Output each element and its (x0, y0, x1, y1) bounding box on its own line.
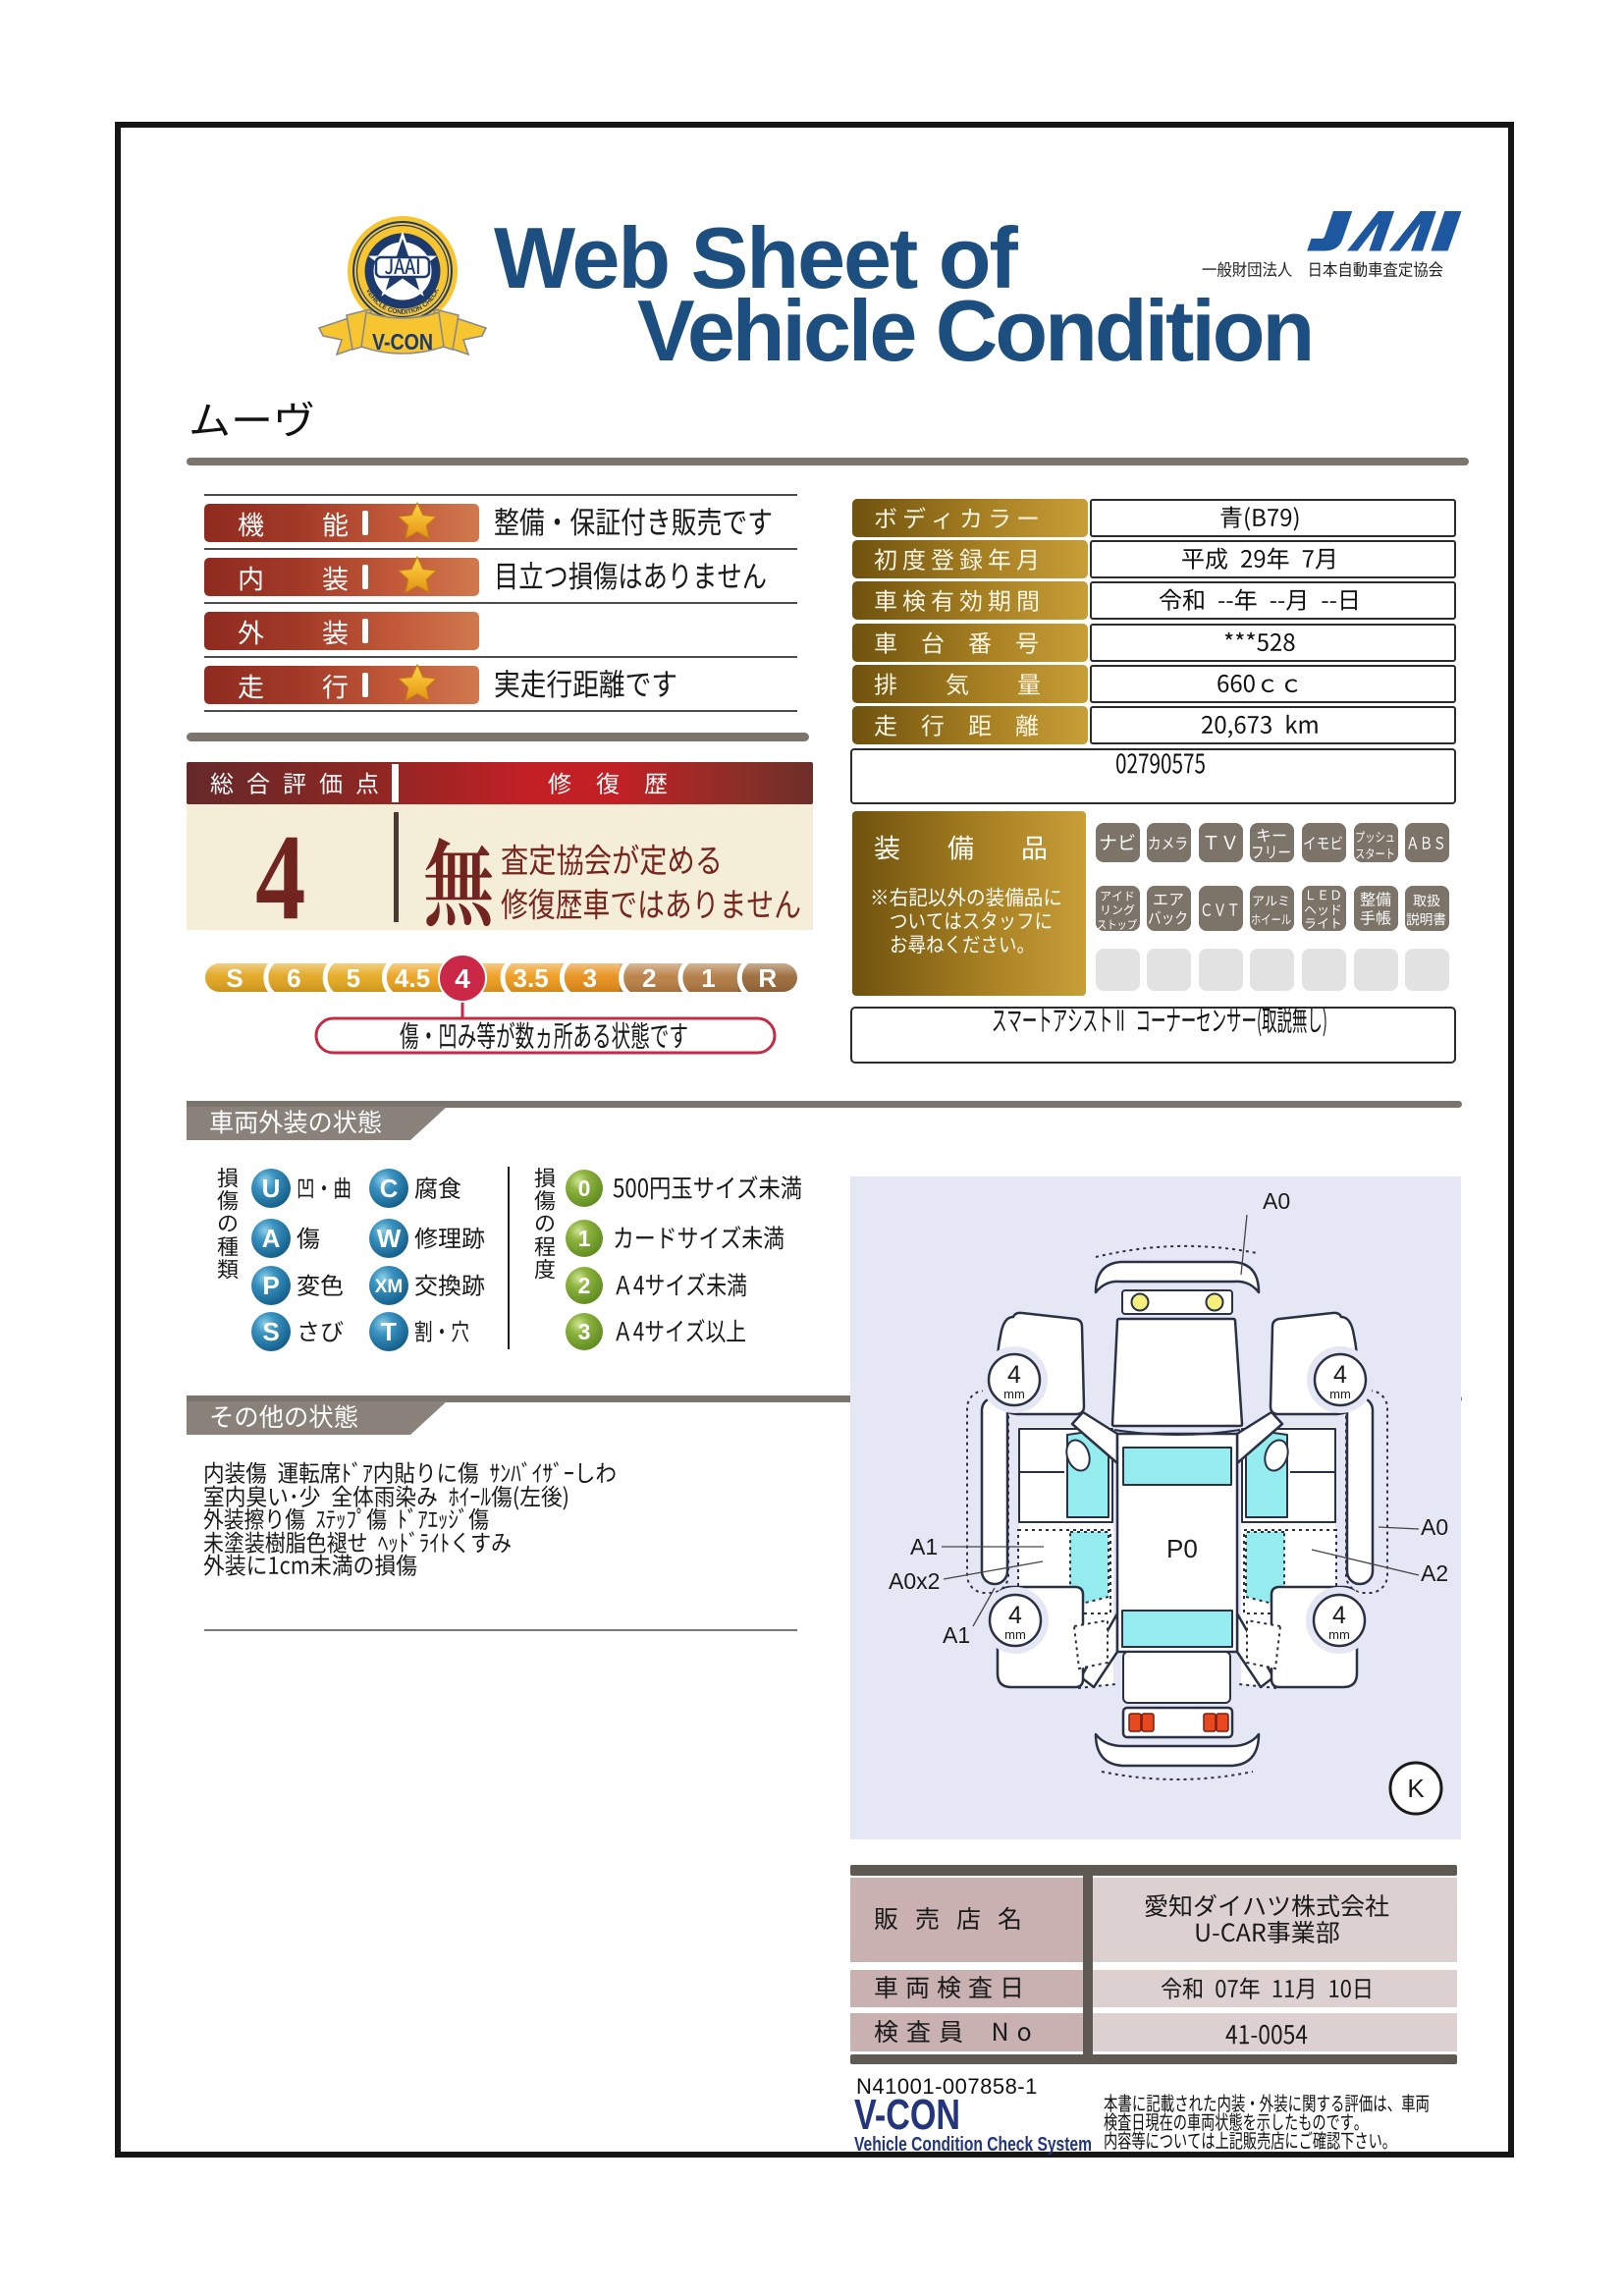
svg-text:W: W (377, 1224, 402, 1253)
svg-text:4: 4 (1332, 1602, 1346, 1629)
svg-text:2: 2 (578, 1273, 591, 1298)
svg-text:Vehicle Condition Check System: Vehicle Condition Check System (854, 2134, 1092, 2156)
svg-text:mm: mm (1004, 1627, 1026, 1642)
svg-text:R: R (758, 963, 777, 993)
svg-text:4: 4 (1333, 1361, 1347, 1389)
svg-text:A0x2: A0x2 (889, 1568, 940, 1594)
svg-text:3.5: 3.5 (514, 963, 549, 993)
svg-text:A2: A2 (1421, 1560, 1448, 1586)
svg-text:XM: XM (375, 1277, 404, 1297)
svg-text:S: S (262, 1317, 279, 1346)
svg-text:3: 3 (583, 963, 597, 993)
svg-text:0: 0 (578, 1175, 591, 1201)
svg-text:mm: mm (1328, 1627, 1350, 1642)
svg-text:A: A (262, 1224, 281, 1253)
svg-text:6: 6 (287, 963, 300, 993)
svg-text:A0: A0 (1421, 1514, 1448, 1540)
svg-text:A1: A1 (910, 1534, 938, 1559)
svg-text:mm: mm (1003, 1387, 1025, 1401)
svg-text:4: 4 (1007, 1361, 1021, 1389)
svg-text:V-CON: V-CON (854, 2091, 960, 2139)
svg-text:K: K (1407, 1774, 1425, 1803)
svg-text:T: T (381, 1317, 397, 1346)
svg-text:C: C (380, 1174, 399, 1203)
svg-text:A1: A1 (943, 1622, 970, 1648)
svg-text:A0: A0 (1263, 1188, 1290, 1214)
svg-text:4.5: 4.5 (395, 963, 430, 993)
svg-text:4: 4 (1008, 1602, 1022, 1629)
svg-text:P: P (262, 1271, 279, 1300)
svg-text:mm: mm (1329, 1387, 1351, 1401)
svg-text:1: 1 (578, 1226, 591, 1251)
svg-text:1: 1 (701, 963, 715, 993)
svg-text:P0: P0 (1166, 1534, 1198, 1563)
svg-text:5: 5 (347, 963, 360, 993)
svg-text:V-CON: V-CON (372, 329, 433, 355)
svg-text:S: S (226, 963, 243, 993)
svg-text:2: 2 (642, 963, 656, 993)
svg-text:3: 3 (578, 1319, 591, 1344)
svg-text:U: U (262, 1174, 281, 1203)
svg-text:4: 4 (455, 963, 470, 994)
